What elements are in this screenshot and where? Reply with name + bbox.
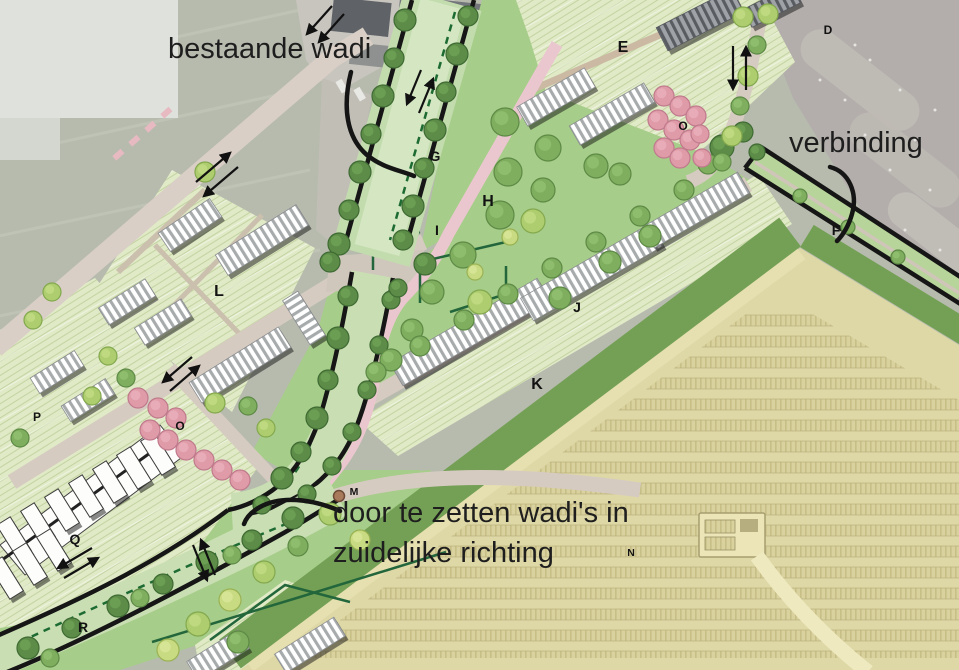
area-label-q: Q <box>70 531 81 547</box>
tree <box>327 327 349 349</box>
tree <box>414 253 436 275</box>
blossom-tree <box>230 470 250 490</box>
tree <box>420 280 444 304</box>
tree <box>748 36 766 54</box>
aerial-light-patch <box>0 0 178 118</box>
tree <box>758 4 778 24</box>
area-label-e: E <box>618 39 629 56</box>
blossom-tree <box>128 388 148 408</box>
tree <box>343 423 361 441</box>
tree <box>372 85 394 107</box>
tree <box>253 561 275 583</box>
tree <box>349 161 371 183</box>
tree <box>394 9 416 31</box>
tree <box>393 230 413 250</box>
aerial-light-patch-small <box>0 118 60 160</box>
tree <box>306 407 328 429</box>
tree <box>722 126 742 146</box>
tree <box>271 467 293 489</box>
annotation-bestaande-wadi: bestaande wadi <box>168 33 371 65</box>
tree <box>157 639 179 661</box>
area-label-o-east: O <box>678 119 687 133</box>
tree <box>239 397 257 415</box>
tree <box>282 507 304 529</box>
tree <box>793 189 807 203</box>
area-label-f: F <box>832 222 841 238</box>
tree <box>291 442 311 462</box>
site-plan-map: bestaande wadi verbinding door te zetten… <box>0 0 959 670</box>
plan-drawing: bestaande wadi verbinding door te zetten… <box>0 0 959 670</box>
annotation-door-line1: door te zetten wadi's in <box>333 497 629 529</box>
tree <box>227 631 249 653</box>
tree <box>446 43 468 65</box>
tree <box>630 206 650 226</box>
annotation-verbinding: verbinding <box>789 127 923 159</box>
tree <box>83 387 101 405</box>
area-label-r: R <box>78 619 88 635</box>
tree <box>494 158 522 186</box>
tree <box>361 124 381 144</box>
area-label-j: J <box>573 299 581 315</box>
tree <box>424 119 446 141</box>
blossom-tree <box>212 460 232 480</box>
tree <box>467 264 483 280</box>
area-label-l: L <box>214 283 224 300</box>
tree <box>733 7 753 27</box>
tree <box>43 283 61 301</box>
tree <box>468 290 492 314</box>
blossom-tree <box>686 106 706 126</box>
blossom-tree <box>176 440 196 460</box>
tree <box>458 6 478 26</box>
tree <box>186 612 210 636</box>
tree <box>117 369 135 387</box>
tree <box>339 200 359 220</box>
tree <box>41 649 59 667</box>
tree <box>384 48 404 68</box>
tree <box>402 195 424 217</box>
tree <box>288 536 308 556</box>
tree <box>338 286 358 306</box>
tree <box>436 82 456 102</box>
tree <box>107 595 129 617</box>
tree <box>749 144 765 160</box>
tree <box>584 154 608 178</box>
blossom-tree <box>194 450 214 470</box>
tree <box>731 97 749 115</box>
blossom-tree <box>693 149 711 167</box>
tree <box>542 258 562 278</box>
tree <box>17 637 39 659</box>
tree <box>205 393 225 413</box>
tree <box>586 232 606 252</box>
tree <box>549 287 571 309</box>
blossom-tree <box>691 125 709 143</box>
tree <box>24 311 42 329</box>
tree <box>502 229 518 245</box>
area-label-i: I <box>435 222 439 238</box>
area-label-o-west: O <box>175 419 184 433</box>
tree <box>257 419 275 437</box>
tree <box>358 381 376 399</box>
tree <box>318 370 338 390</box>
blossom-tree <box>670 148 690 168</box>
tree <box>320 252 340 272</box>
tree <box>11 429 29 447</box>
blossom-tree <box>140 420 160 440</box>
tree <box>323 457 341 475</box>
farm-building <box>699 513 765 557</box>
area-label-h: H <box>482 193 494 210</box>
tree <box>366 362 386 382</box>
blossom-tree <box>148 398 168 418</box>
tree <box>223 546 241 564</box>
tree <box>674 180 694 200</box>
annotation-door-line2: zuidelijke richting <box>333 537 554 569</box>
tree <box>891 250 905 264</box>
area-label-d: D <box>824 23 833 37</box>
area-label-n: N <box>627 547 635 559</box>
blossom-tree <box>158 430 178 450</box>
tree <box>219 589 241 611</box>
tree <box>242 530 262 550</box>
tree <box>639 225 661 247</box>
tree <box>389 279 407 297</box>
tree <box>531 178 555 202</box>
tree <box>454 310 474 330</box>
area-label-g: G <box>430 148 441 164</box>
tree <box>521 209 545 233</box>
tree <box>498 284 518 304</box>
tree <box>599 251 621 273</box>
area-label-k: K <box>531 376 543 393</box>
tree <box>99 347 117 365</box>
tree <box>131 589 149 607</box>
tree <box>410 336 430 356</box>
area-label-p: P <box>33 410 41 424</box>
tree <box>713 153 731 171</box>
tree <box>609 163 631 185</box>
tree <box>153 574 173 594</box>
tree <box>535 135 561 161</box>
area-label-m: M <box>350 486 359 498</box>
tree <box>738 66 758 86</box>
tree <box>491 108 519 136</box>
